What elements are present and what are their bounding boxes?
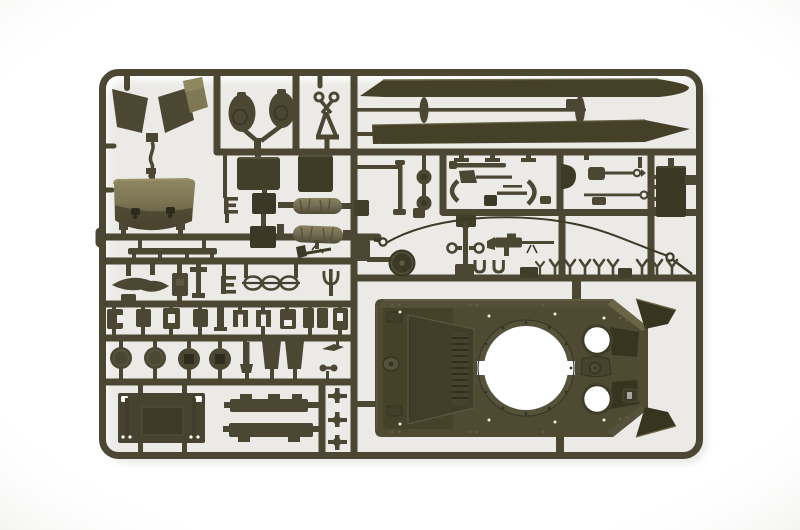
- photo-vignette: [0, 0, 800, 530]
- photo-canvas: [0, 0, 800, 530]
